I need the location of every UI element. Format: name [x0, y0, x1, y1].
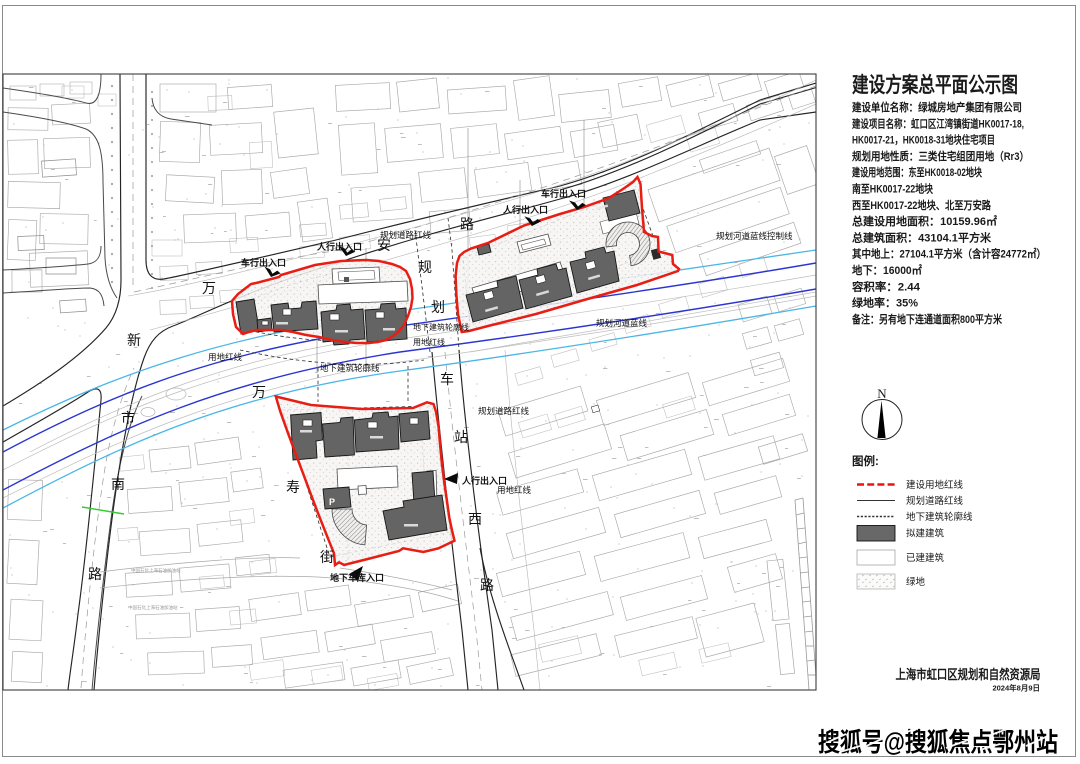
svg-text:总建筑面积：43104.1平方米: 总建筑面积：43104.1平方米	[852, 230, 992, 244]
svg-text:划: 划	[431, 299, 445, 315]
svg-text:西: 西	[468, 511, 482, 527]
svg-text:总建设用地面积：10159.96㎡: 总建设用地面积：10159.96㎡	[852, 214, 997, 228]
svg-text:地下：16000㎡: 地下：16000㎡	[852, 263, 922, 277]
svg-text:安: 安	[377, 237, 391, 253]
svg-text:用地红线: 用地红线	[208, 352, 243, 362]
svg-text:路: 路	[480, 577, 494, 593]
svg-text:备注：另有地下连通道面积800平方米: 备注：另有地下连通道面积800平方米	[851, 312, 1003, 326]
svg-text:建设项目名称：虹口区江湾镇街道HK0017-18,: 建设项目名称：虹口区江湾镇街道HK0017-18,	[852, 116, 1024, 130]
svg-text:P: P	[329, 497, 335, 507]
svg-text:地下车库入口: 地下车库入口	[330, 572, 384, 583]
svg-text:车行出入口: 车行出入口	[541, 188, 586, 199]
svg-text:中国石化上海石油加油站: 中国石化上海石油加油站	[131, 567, 181, 574]
svg-text:搜狐号@搜狐焦点鄂州站: 搜狐号@搜狐焦点鄂州站	[818, 728, 1058, 757]
svg-text:建设用地范围：东至HK0018-02地块: 建设用地范围：东至HK0018-02地块	[852, 165, 983, 179]
svg-text:N: N	[877, 386, 887, 401]
svg-text:规划道路红线: 规划道路红线	[478, 406, 530, 416]
svg-text:建设用地红线: 建设用地红线	[906, 479, 964, 491]
svg-text:用地红线: 用地红线	[497, 485, 532, 495]
svg-text:规划用地性质：三类住宅组团用地（Rr3）: 规划用地性质：三类住宅组团用地（Rr3）	[852, 149, 1029, 163]
svg-text:规划河道蓝线: 规划河道蓝线	[596, 318, 648, 328]
svg-text:新: 新	[127, 332, 141, 348]
svg-text:规划河道蓝线控制线: 规划河道蓝线控制线	[716, 231, 793, 241]
svg-text:用地红线: 用地红线	[413, 337, 445, 347]
svg-text:地下建筑轮廓线: 地下建筑轮廓线	[906, 511, 973, 523]
svg-text:地下建筑轮廓线: 地下建筑轮廓线	[413, 322, 469, 332]
svg-text:其中地上：27104.1平方米（含计容24772㎡）: 其中地上：27104.1平方米（含计容24772㎡）	[852, 247, 1046, 261]
svg-text:路: 路	[88, 566, 102, 582]
svg-text:万: 万	[252, 384, 266, 400]
svg-text:万: 万	[202, 280, 216, 296]
svg-text:上海市虹口区规划和自然资源局: 上海市虹口区规划和自然资源局	[896, 667, 1041, 682]
svg-text:车行出入口: 车行出入口	[241, 257, 286, 268]
svg-text:中国石化上海石油加油站: 中国石化上海石油加油站	[128, 604, 178, 611]
svg-text:建设单位名称：绿城房地产集团有限公司: 建设单位名称：绿城房地产集团有限公司	[852, 100, 1022, 114]
svg-text:规划道路红线: 规划道路红线	[906, 495, 964, 507]
svg-text:HK0017-21，HK0018-31地块住宅项目: HK0017-21，HK0018-31地块住宅项目	[852, 133, 995, 147]
svg-text:图例:: 图例:	[852, 454, 879, 468]
svg-text:绿地: 绿地	[906, 576, 926, 588]
svg-text:人行出入口: 人行出入口	[316, 241, 362, 252]
svg-text:寿: 寿	[286, 479, 300, 495]
svg-text:已建建筑: 已建建筑	[906, 552, 945, 564]
svg-text:南: 南	[111, 476, 125, 492]
svg-text:路: 路	[460, 216, 474, 232]
svg-text:绿地率：35%: 绿地率：35%	[852, 296, 918, 310]
svg-text:拟建建筑: 拟建建筑	[906, 528, 945, 540]
svg-text:车: 车	[440, 371, 454, 387]
svg-text:西至HK0017-22地块、北至万安路: 西至HK0017-22地块、北至万安路	[852, 198, 992, 212]
svg-text:容积率：2.44: 容积率：2.44	[851, 279, 921, 293]
svg-text:规: 规	[418, 259, 432, 275]
svg-text:街: 街	[320, 549, 334, 565]
svg-text:站: 站	[454, 429, 468, 445]
svg-text:地下建筑轮廓线: 地下建筑轮廓线	[320, 363, 380, 373]
svg-text:人行出入口: 人行出入口	[502, 204, 548, 215]
svg-text:人行出入口: 人行出入口	[461, 475, 507, 486]
svg-text:南至HK0017-22地块: 南至HK0017-22地块	[852, 182, 934, 196]
svg-text:市: 市	[121, 410, 135, 426]
svg-text:2024年8月9日: 2024年8月9日	[992, 683, 1040, 693]
svg-text:建设方案总平面公示图: 建设方案总平面公示图	[852, 73, 1018, 97]
